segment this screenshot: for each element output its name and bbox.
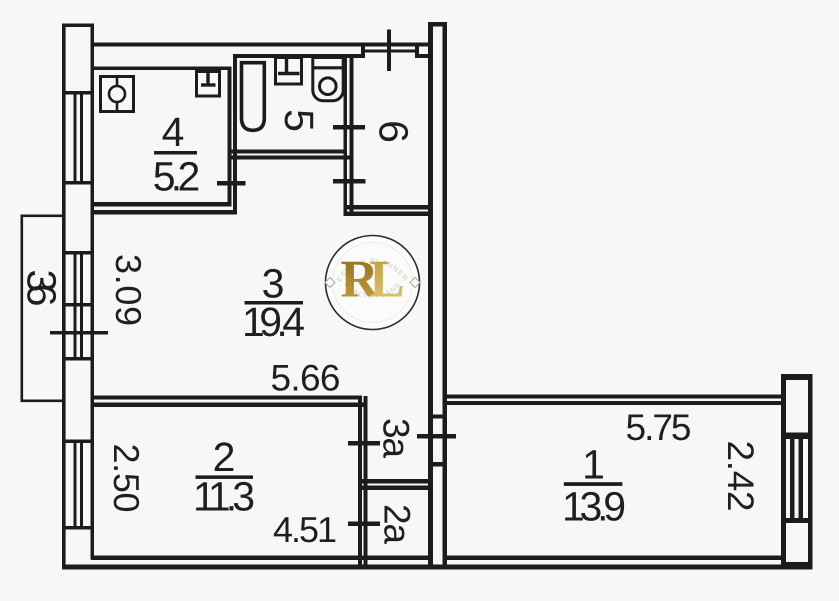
svg-text:2.50: 2.50 [106,444,147,513]
svg-text:4: 4 [162,109,185,155]
svg-text:36: 36 [19,270,65,307]
svg-text:6: 6 [371,120,417,143]
svg-text:19.4: 19.4 [242,299,305,345]
svg-text:13.9: 13.9 [562,484,626,530]
svg-text:2a: 2a [377,504,418,544]
svg-text:L: L [369,251,404,309]
svg-text:5: 5 [276,109,322,132]
svg-text:5.66: 5.66 [271,358,341,399]
svg-text:5.75: 5.75 [626,407,692,448]
svg-text:5.2: 5.2 [153,154,201,200]
svg-text:4.51: 4.51 [273,509,337,550]
svg-text:1: 1 [582,442,605,488]
svg-text:3.09: 3.09 [108,254,149,326]
svg-text:3a: 3a [376,418,417,458]
svg-text:11.3: 11.3 [193,474,255,520]
svg-text:2.42: 2.42 [720,441,761,512]
